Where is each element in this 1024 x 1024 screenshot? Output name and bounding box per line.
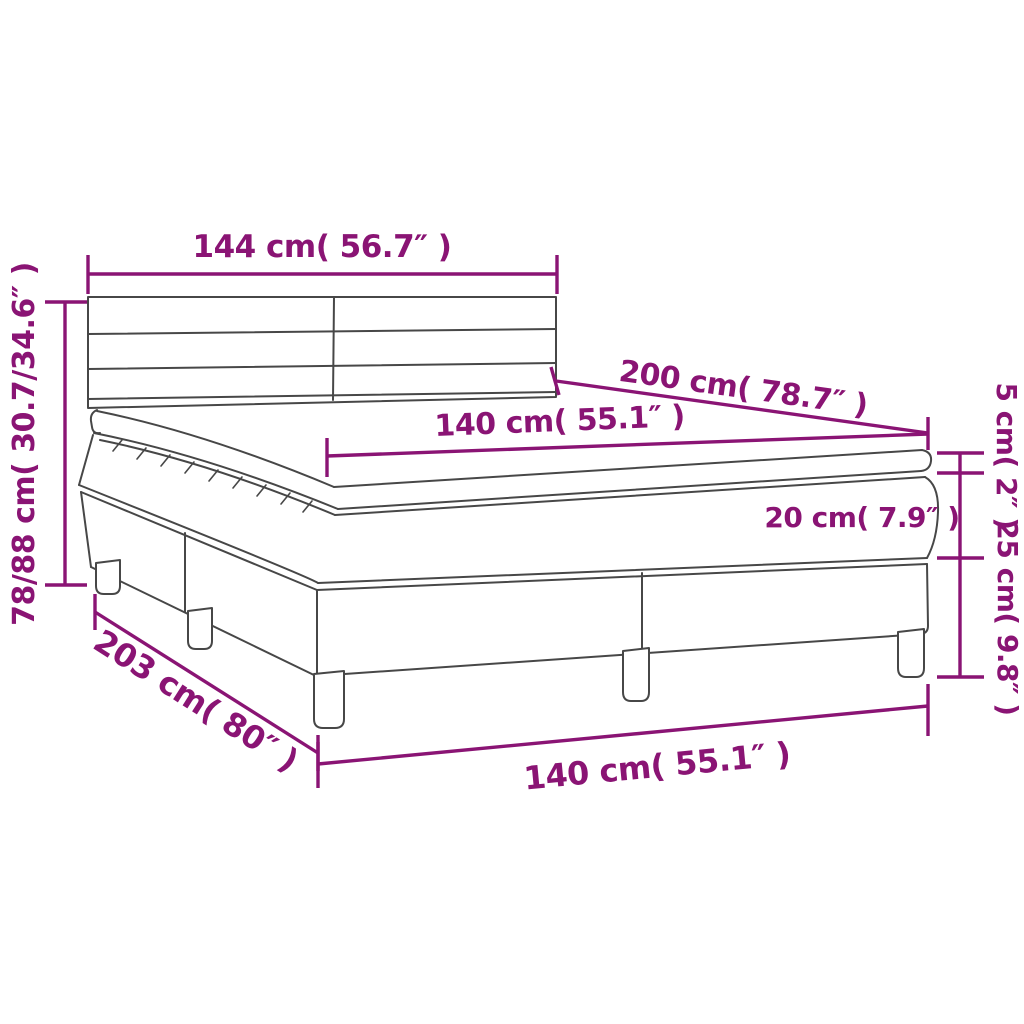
bed-dimension-diagram: 144 cm( 56.7″ ) 78/88 cm( 30.7/34.6″ ) 2… bbox=[0, 0, 1024, 1024]
bed-leg-foot-right bbox=[898, 629, 924, 677]
headboard-center-seam bbox=[333, 297, 334, 400]
bed-leg-head bbox=[96, 560, 120, 594]
bed-leg-foot-middle bbox=[623, 648, 649, 701]
dim-label-headboard-width: 144 cm( 56.7″ ) bbox=[193, 229, 452, 265]
dim-label-total-height: 78/88 cm( 30.7/34.6″ ) bbox=[7, 262, 42, 626]
mattress-left-edge bbox=[79, 435, 93, 485]
dim-label-mattress-width-bottom: 140 cm( 55.1″ ) bbox=[522, 735, 792, 798]
bed-leg-corner bbox=[314, 671, 344, 728]
dim-label-box-height: 25 cm( 9.8″ ) bbox=[991, 520, 1024, 715]
box-top-foot-edge bbox=[317, 564, 927, 590]
box-bottom-foot-edge bbox=[316, 634, 922, 676]
mattress-zipper-rim-near bbox=[100, 440, 335, 515]
dim-label-mattress-height: 20 cm( 7.9″ ) bbox=[764, 501, 959, 534]
dim-total-height: 78/88 cm( 30.7/34.6″ ) bbox=[7, 262, 87, 626]
dim-layer-heights: 5 cm( 2″ ) 20 cm( 7.9″ ) 25 cm( 9.8″ ) bbox=[764, 382, 1024, 715]
topper-left-face bbox=[91, 410, 100, 433]
mattress-zipper-hatching bbox=[113, 440, 312, 512]
bed-leg-side-middle bbox=[188, 608, 212, 649]
dim-headboard-width: 144 cm( 56.7″ ) bbox=[88, 229, 557, 294]
mattress-bottom-foot-edge bbox=[318, 558, 927, 583]
topper-near-top-edge bbox=[97, 411, 334, 487]
headboard-outline bbox=[88, 297, 556, 408]
box-right-edge bbox=[919, 564, 928, 634]
dim-label-mattress-width-top: 140 cm( 55.1″ ) bbox=[434, 399, 686, 444]
box-left-edge bbox=[81, 492, 91, 567]
diagram-canvas: 144 cm( 56.7″ ) 78/88 cm( 30.7/34.6″ ) 2… bbox=[0, 0, 1024, 1024]
dim-mattress-width-bottom: 140 cm( 55.1″ ) bbox=[318, 684, 928, 798]
dim-label-topper-height: 5 cm( 2″ ) bbox=[990, 382, 1023, 529]
